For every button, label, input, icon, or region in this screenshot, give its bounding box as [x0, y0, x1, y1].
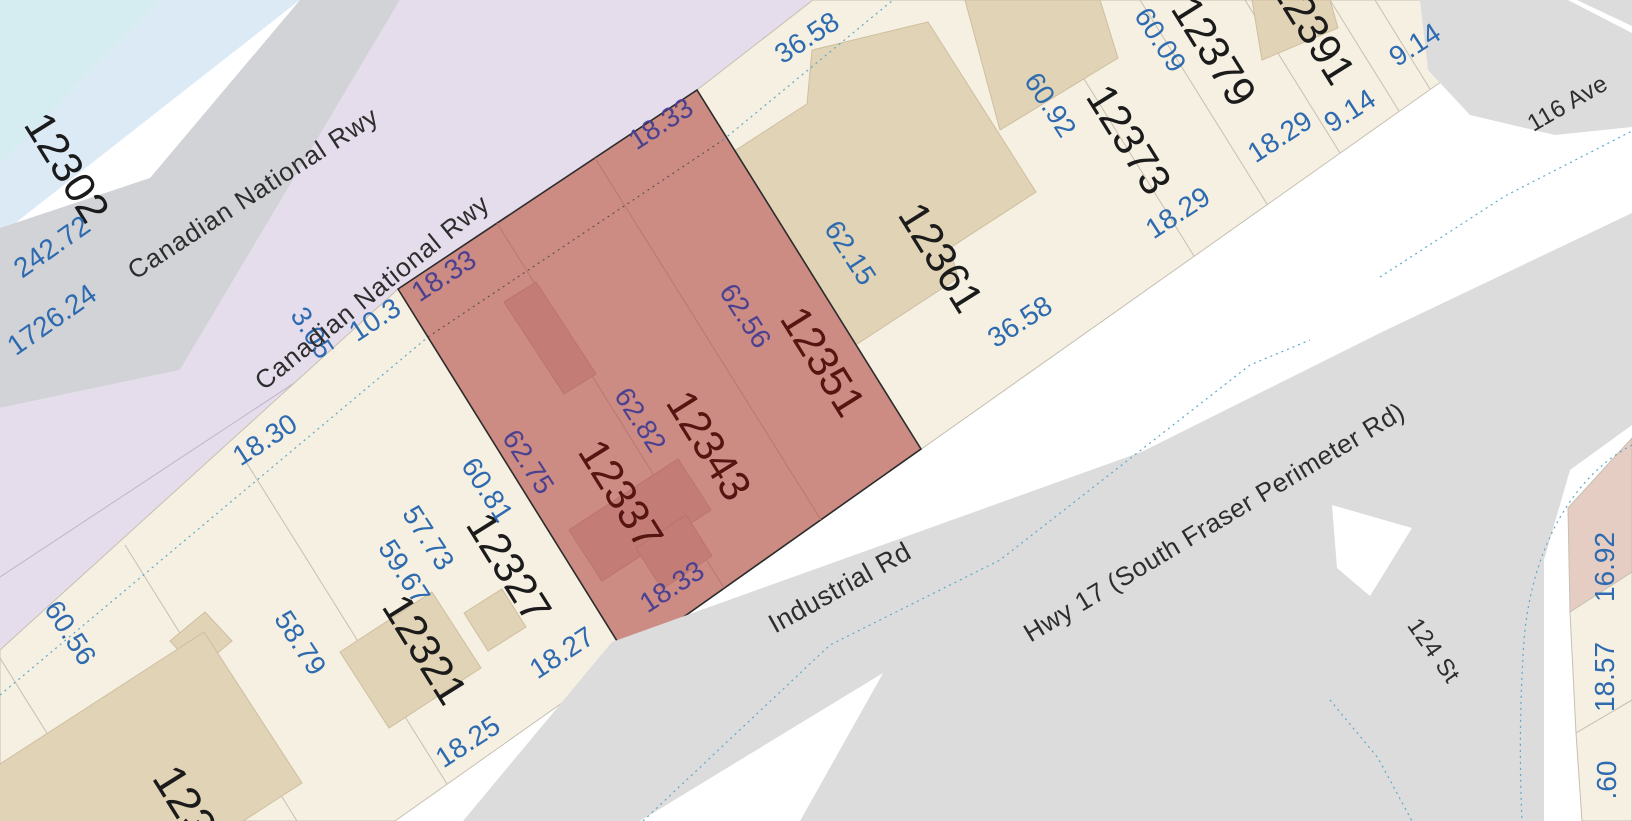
road-116-ave — [1420, 0, 1632, 135]
parcel-map-canvas[interactable]: 1230212361123731237912391123271232112312… — [0, 0, 1632, 821]
map-shapes-layer — [0, 0, 1632, 821]
